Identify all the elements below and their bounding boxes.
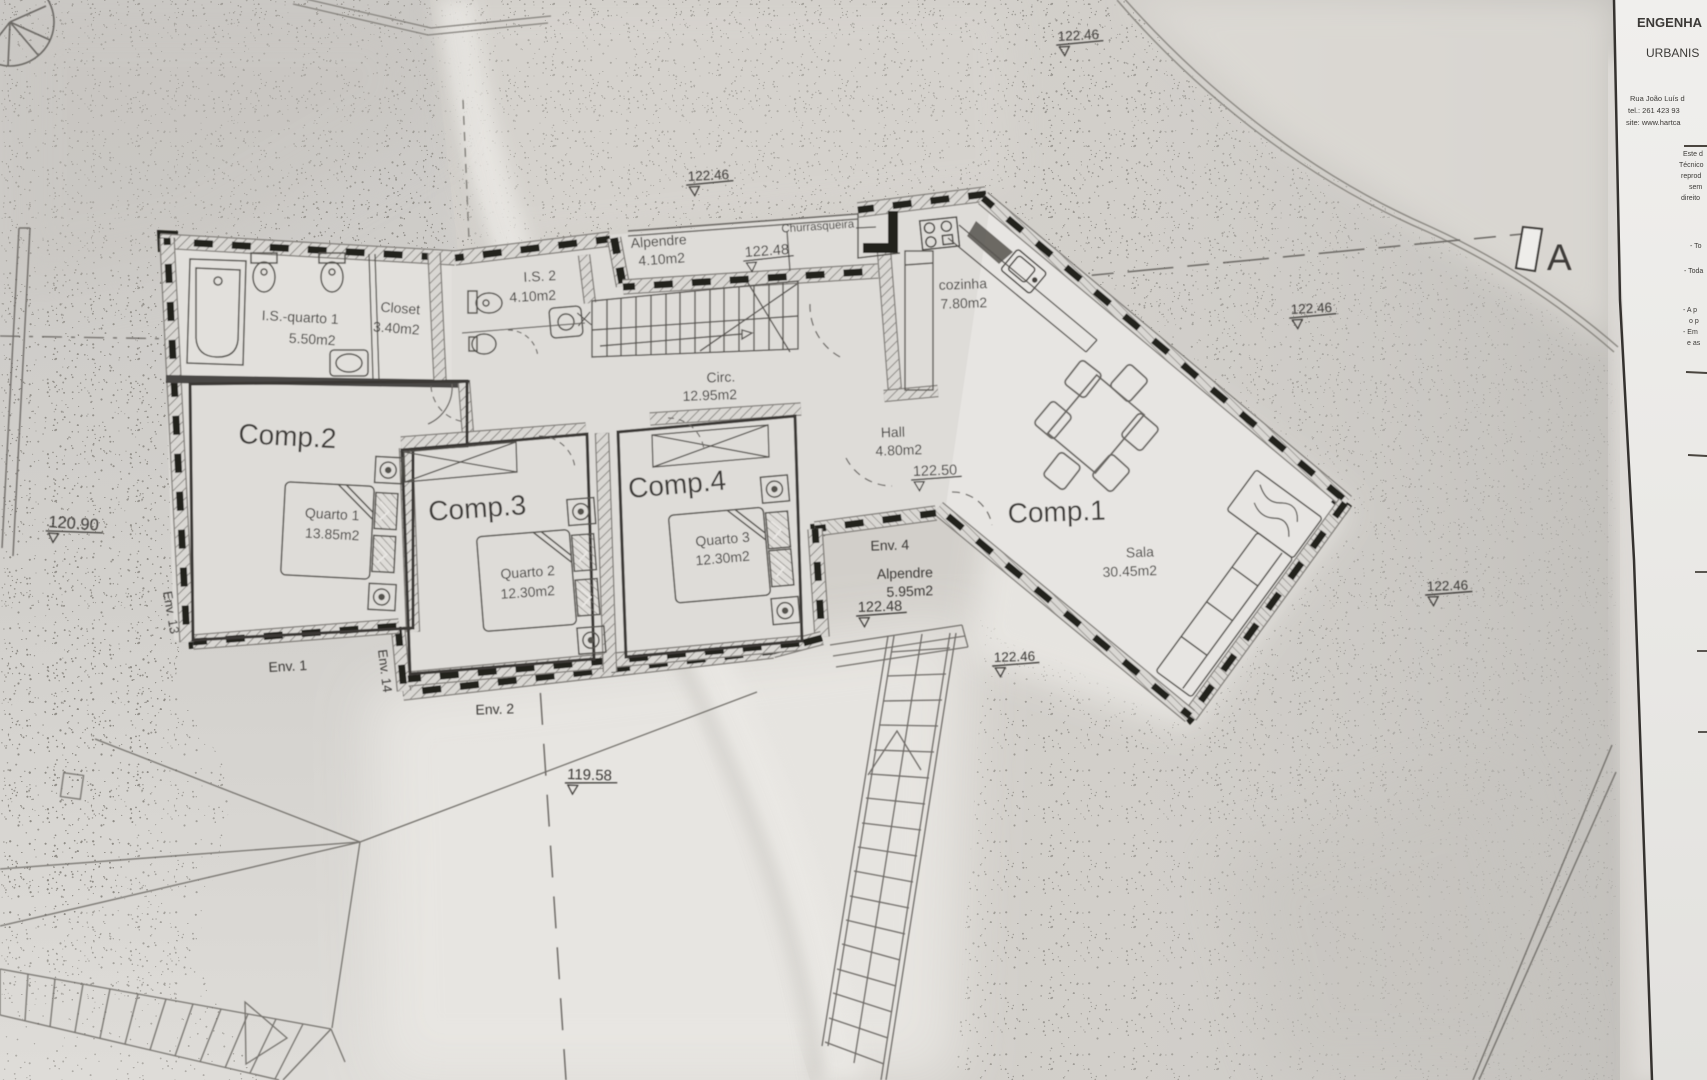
svg-text:119.58: 119.58 xyxy=(567,766,612,785)
svg-text:4.10m2: 4.10m2 xyxy=(638,249,686,268)
svg-text:- Em: - Em xyxy=(1683,329,1698,336)
svg-text:- Toda: - Toda xyxy=(1684,268,1703,275)
svg-text:Env. 4: Env. 4 xyxy=(870,536,909,553)
svg-text:Comp.1: Comp.1 xyxy=(1007,495,1106,529)
svg-text:Env. 2: Env. 2 xyxy=(475,700,514,717)
svg-text:site: www.hartca: site: www.hartca xyxy=(1626,118,1681,127)
svg-text:Este d: Este d xyxy=(1683,151,1703,158)
svg-text:13.85m2: 13.85m2 xyxy=(305,525,360,544)
svg-text:122.46: 122.46 xyxy=(1427,578,1469,594)
svg-text:ENGENHA: ENGENHA xyxy=(1637,15,1703,30)
svg-text:- To: - To xyxy=(1690,243,1702,250)
svg-text:e as: e as xyxy=(1687,340,1701,347)
svg-text:Circ.: Circ. xyxy=(706,369,735,386)
svg-text:o p: o p xyxy=(1689,318,1699,325)
svg-text:A: A xyxy=(1547,237,1572,278)
svg-text:122.46: 122.46 xyxy=(994,649,1036,665)
svg-text:reprod: reprod xyxy=(1681,173,1701,180)
svg-text:Técnico: Técnico xyxy=(1679,162,1704,169)
svg-text:Quarto 1: Quarto 1 xyxy=(305,505,360,524)
svg-text:Sala: Sala xyxy=(1126,544,1155,561)
svg-text:4.80m2: 4.80m2 xyxy=(875,441,922,459)
svg-text:I.S. 2: I.S. 2 xyxy=(523,267,557,285)
svg-text:cozinha: cozinha xyxy=(938,275,987,293)
svg-text:direito: direito xyxy=(1681,195,1700,202)
svg-text:Alpendre: Alpendre xyxy=(877,564,934,582)
svg-text:Hall: Hall xyxy=(880,424,905,441)
svg-text:30.45m2: 30.45m2 xyxy=(1102,562,1157,580)
svg-text:Env. 1: Env. 1 xyxy=(268,657,308,675)
svg-text:3.40m2: 3.40m2 xyxy=(372,318,420,337)
svg-text:URBANIS: URBANIS xyxy=(1646,46,1699,60)
svg-text:- A p: - A p xyxy=(1683,307,1697,314)
svg-text:Closet: Closet xyxy=(380,299,421,318)
svg-text:12.95m2: 12.95m2 xyxy=(682,386,737,404)
svg-text:7.80m2: 7.80m2 xyxy=(940,294,987,312)
svg-text:Rua João Luís d: Rua João Luís d xyxy=(1630,94,1685,103)
svg-text:5.50m2: 5.50m2 xyxy=(289,330,337,348)
svg-text:tel.: 261 423 93: tel.: 261 423 93 xyxy=(1628,106,1680,115)
svg-text:Comp.2: Comp.2 xyxy=(238,418,338,454)
svg-text:sem: sem xyxy=(1689,184,1702,191)
svg-text:4.10m2: 4.10m2 xyxy=(509,287,557,305)
svg-text:5.95m2: 5.95m2 xyxy=(886,582,933,600)
